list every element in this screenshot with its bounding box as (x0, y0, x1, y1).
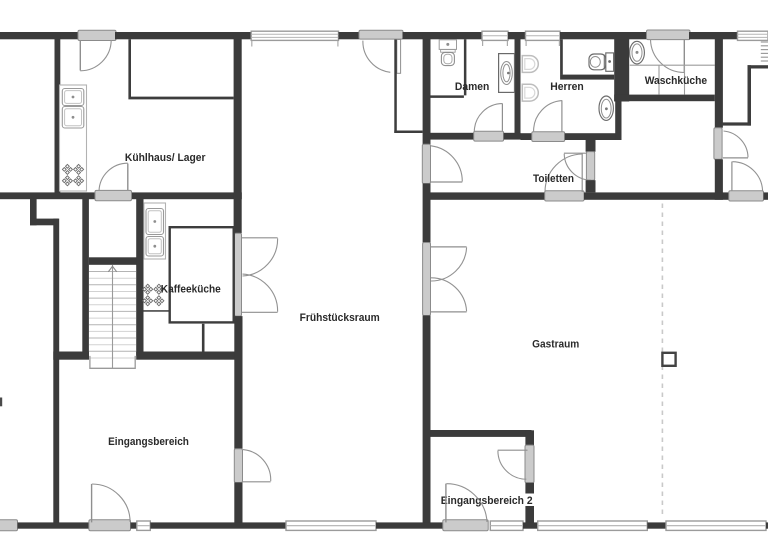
svg-text:Damen: Damen (455, 81, 489, 93)
svg-text:Frühstücksraum: Frühstücksraum (300, 312, 380, 324)
svg-text:Eingangsbereich 2: Eingangsbereich 2 (441, 495, 533, 507)
svg-text:Kühlhaus/ Lager: Kühlhaus/ Lager (125, 152, 206, 164)
svg-text:Herren: Herren (550, 81, 584, 93)
svg-text:Eingangsbereich: Eingangsbereich (108, 436, 189, 448)
svg-text:Kaffeeküche: Kaffeeküche (161, 283, 221, 295)
svg-text:Waschküche: Waschküche (645, 75, 707, 87)
svg-text:Toiletten: Toiletten (533, 173, 574, 185)
svg-text:Gastraum: Gastraum (532, 339, 579, 351)
